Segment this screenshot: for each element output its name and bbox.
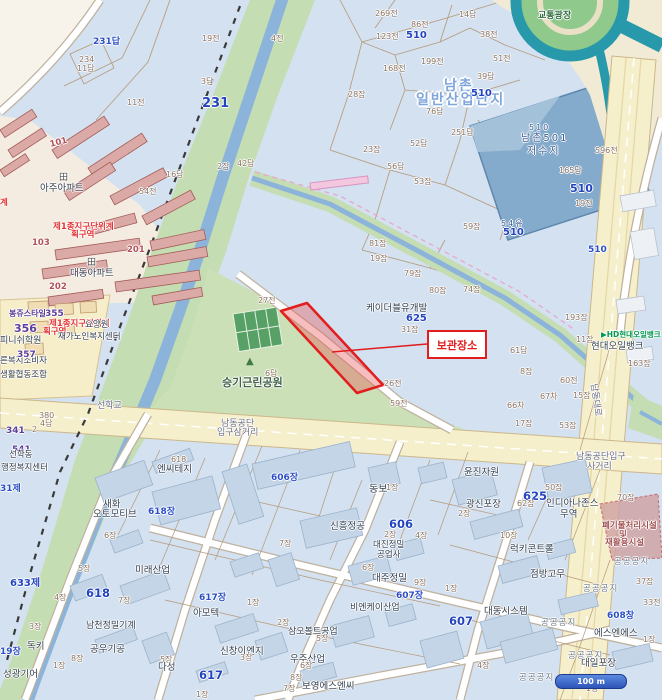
map-label: 59전: [390, 400, 408, 408]
map-label: 남촌: [444, 79, 474, 93]
map-label: 럭키콘트롤: [510, 545, 554, 555]
reservoir-name: 남촌501: [521, 134, 569, 144]
map-label: 광신포장: [466, 500, 501, 510]
map-label: 202: [49, 283, 67, 292]
map-label: 510: [588, 246, 607, 255]
map-label: 42답: [237, 160, 255, 168]
map-label: 8장: [71, 655, 83, 663]
map-label: 201: [127, 246, 145, 255]
map-label: 31제: [0, 485, 21, 494]
map-label: 아모텍: [193, 609, 219, 619]
map-label: 동보: [369, 485, 387, 495]
map-label: 607장: [396, 592, 423, 601]
map-label: 1장: [196, 691, 208, 699]
map-label: 53잡: [559, 422, 577, 430]
apartment-icon: 田: [59, 174, 68, 183]
map-label: 103: [32, 239, 50, 248]
map-label: 3답: [201, 78, 213, 86]
map-label: 신흥정공: [330, 522, 365, 532]
map-label: 165답: [559, 167, 582, 175]
map-label: 618장: [148, 508, 175, 517]
map-label: 606: [389, 519, 413, 531]
map-label: 54전: [139, 188, 157, 196]
map-label: 대주정밀: [372, 574, 407, 584]
map-label: 1장: [247, 599, 259, 607]
park-icon: ▲: [246, 357, 254, 367]
map-label: 618: [171, 456, 186, 464]
junction-name: 남동공단입구: [576, 453, 626, 462]
map-label: 4장: [54, 594, 66, 602]
map-label: 1장: [445, 585, 457, 593]
map-label: 2장: [384, 531, 396, 539]
map-label: 251답: [451, 129, 474, 137]
map-label: 공공공지: [614, 558, 649, 567]
map-label: 무역: [560, 510, 577, 520]
map-label: 50잡: [545, 484, 563, 492]
map-viewport[interactable]: 231답23411답19전3답23111전4전42답16답54전2잡269전86…: [0, 0, 662, 700]
map-label: 생활협동조합: [0, 371, 47, 380]
bridge-name: 선학교: [97, 402, 122, 411]
map-label: 대진정밀: [373, 541, 404, 550]
map-label: 획구역: [71, 231, 94, 240]
map-label: 19잡: [370, 255, 388, 263]
map-label: 33전: [643, 599, 661, 607]
map-label: 5장: [78, 565, 90, 573]
road-name-namdong-daero: 남동대로: [588, 383, 602, 417]
map-label: 356: [14, 323, 37, 334]
scale-bar: 100 m: [555, 674, 627, 689]
map-label: 봉쥬스타일: [9, 310, 46, 318]
map-label: 4답: [40, 420, 52, 428]
map-label: 11답: [77, 65, 95, 73]
map-label: 608창: [607, 612, 634, 621]
map-label: 606장: [271, 474, 298, 483]
park-name: 승기근린공원: [222, 377, 283, 388]
map-label: 2잡: [217, 163, 229, 171]
map-label: 51전: [493, 55, 511, 63]
map-label: 보영에스엔씨: [302, 682, 354, 692]
map-label: 삼오볼트공업: [288, 628, 338, 637]
map-label: 대동아파트: [70, 269, 114, 279]
map-label: 15잡: [573, 392, 591, 400]
map-label: 61답: [510, 347, 528, 355]
map-label: 168전: [383, 65, 406, 73]
map-label: 남천정밀기계: [86, 622, 136, 631]
map-label: 27전: [258, 297, 276, 305]
map-label: 8잡: [520, 368, 532, 376]
map-label: 비엔케이산업: [350, 604, 400, 613]
map-label: 4장: [477, 662, 489, 670]
map-label: 행정복지센터: [1, 464, 48, 473]
map-label: 355: [45, 310, 64, 319]
map-label: 7장: [118, 597, 130, 605]
map-label: 6장: [104, 532, 116, 540]
map-label: 37잡: [636, 578, 654, 586]
map-label: 4전: [271, 35, 283, 43]
map-label: 재가노인복지센터: [58, 333, 121, 342]
map-label: 1장: [53, 662, 65, 670]
map-label: 10장: [500, 532, 518, 540]
map-label: 독키: [27, 642, 44, 652]
map-label: 66차: [507, 402, 525, 410]
map-label: 231답: [93, 38, 120, 47]
map-label: 공업사: [377, 551, 400, 560]
hyundai-oilbank-label: 현대오일뱅크: [591, 342, 643, 352]
map-label: 1장: [386, 484, 398, 492]
map-label: 625: [406, 314, 427, 324]
map-label: 2: [32, 426, 37, 434]
map-label: 596전: [595, 147, 618, 155]
map-label: 공공공지: [541, 619, 576, 628]
map-label: 59잡: [463, 223, 481, 231]
map-label: 62잡: [517, 500, 535, 508]
map-label: 123전: [376, 33, 399, 41]
map-label: 617: [199, 670, 223, 682]
map-label: 79잡: [404, 270, 422, 278]
map-label: 다성: [158, 663, 175, 673]
map-label: 2장: [277, 619, 289, 627]
apartment-icon: 田: [87, 259, 96, 268]
map-label: 에스엔에스: [594, 629, 638, 639]
map-label: 공공공지: [583, 585, 618, 594]
map-label: 엔씨테지: [157, 465, 192, 475]
map-label: 26전: [384, 380, 402, 388]
map-label: 7장: [279, 540, 291, 548]
map-label: 510: [471, 89, 492, 99]
map-label: 510: [503, 228, 524, 238]
map-label: 101: [49, 137, 68, 150]
map-label: 재활용시설: [605, 539, 644, 548]
map-label: 11전: [127, 99, 145, 107]
map-label: 39답: [477, 73, 495, 81]
map-label: 618: [86, 588, 110, 600]
map-label: 성광기어: [3, 670, 38, 680]
map-label: 269전: [375, 10, 398, 18]
map-label: 점방고무: [530, 570, 565, 580]
map-label: 폐기물처리시설: [602, 522, 657, 531]
map-label: 2장: [458, 510, 470, 518]
map-label: 6답: [265, 370, 277, 378]
map-label: 56답: [387, 163, 405, 171]
map-label: 510: [529, 124, 550, 132]
map-label: 대동시스템: [484, 607, 528, 617]
map-label: 아주아파트: [40, 184, 84, 194]
map-label: 617장: [199, 594, 226, 603]
map-label: 607: [449, 616, 473, 628]
junction-name: 입구삼거리: [217, 429, 258, 438]
map-label: 5장: [316, 635, 328, 643]
map-label: 3장: [29, 623, 41, 631]
map-label: 3장: [240, 654, 252, 662]
map-label: 6장: [362, 564, 374, 572]
map-label: 231: [202, 97, 229, 110]
map-label: 9장: [414, 579, 426, 587]
map-label: 피니쉬학원: [0, 337, 41, 346]
map-label: 8장: [290, 674, 302, 682]
map-label: 대일포장: [581, 659, 616, 669]
map-label: 60전: [560, 377, 578, 385]
hd-hyundai-oilbank-logo: ▶HD현대오일뱅크: [601, 331, 661, 339]
map-label: 80잡: [429, 287, 447, 295]
map-label: 16답: [166, 171, 184, 179]
map-label: 70잡: [617, 494, 635, 502]
map-label: 19전: [202, 35, 220, 43]
map-label: 86전: [411, 21, 429, 29]
map-label: 163잡: [628, 360, 651, 368]
map-label: 74잡: [463, 286, 481, 294]
map-label: 19전: [575, 200, 593, 208]
map-label: 510: [406, 31, 427, 41]
traffic-plaza-label: 교통광장: [538, 12, 571, 21]
map-label: 19장: [0, 648, 21, 657]
map-label: 오토모티브: [93, 510, 137, 520]
map-label: 52답: [410, 140, 428, 148]
map-label: 공우기공: [90, 645, 125, 655]
map-label: 76답: [426, 108, 444, 116]
map-label: 요양원: [85, 321, 108, 330]
map-label: 선학동: [9, 451, 32, 460]
map-label: 계: [0, 199, 8, 208]
map-label: 23잡: [363, 146, 381, 154]
map-label: 공공공지: [519, 674, 554, 683]
map-label: 67차: [540, 393, 558, 401]
map-label: 윤진자원: [464, 468, 499, 478]
map-label: 31잡: [401, 326, 419, 334]
map-label: 7장: [283, 685, 295, 693]
map-label: 193잡: [565, 314, 588, 322]
map-label: 199전: [421, 58, 444, 66]
map-label: 17잡: [515, 420, 533, 428]
map-label: 53잡: [414, 178, 432, 186]
map-labels: 231답23411답19전3답23111전4전42답16답54전2잡269전86…: [0, 0, 662, 700]
map-label: 미래산업: [135, 566, 170, 576]
map-label: 38전: [480, 31, 498, 39]
map-label: 6장: [300, 662, 312, 670]
reservoir-name: 저수지: [527, 147, 561, 157]
map-label: 28잡: [348, 91, 366, 99]
map-label: 14답: [459, 11, 477, 19]
map-label: 1장: [643, 636, 655, 644]
map-label: 633제: [10, 579, 40, 589]
map-label: 4장: [415, 532, 427, 540]
map-label: 510: [570, 183, 593, 194]
map-label: 81잡: [369, 240, 387, 248]
map-label: 357: [17, 351, 36, 360]
map-label: 341: [6, 427, 25, 436]
map-label: 인디아나존스: [546, 499, 598, 509]
map-label: 234: [79, 56, 94, 64]
junction-name: 사거리: [587, 463, 612, 472]
storage-location-callout: 보관장소: [427, 330, 487, 359]
